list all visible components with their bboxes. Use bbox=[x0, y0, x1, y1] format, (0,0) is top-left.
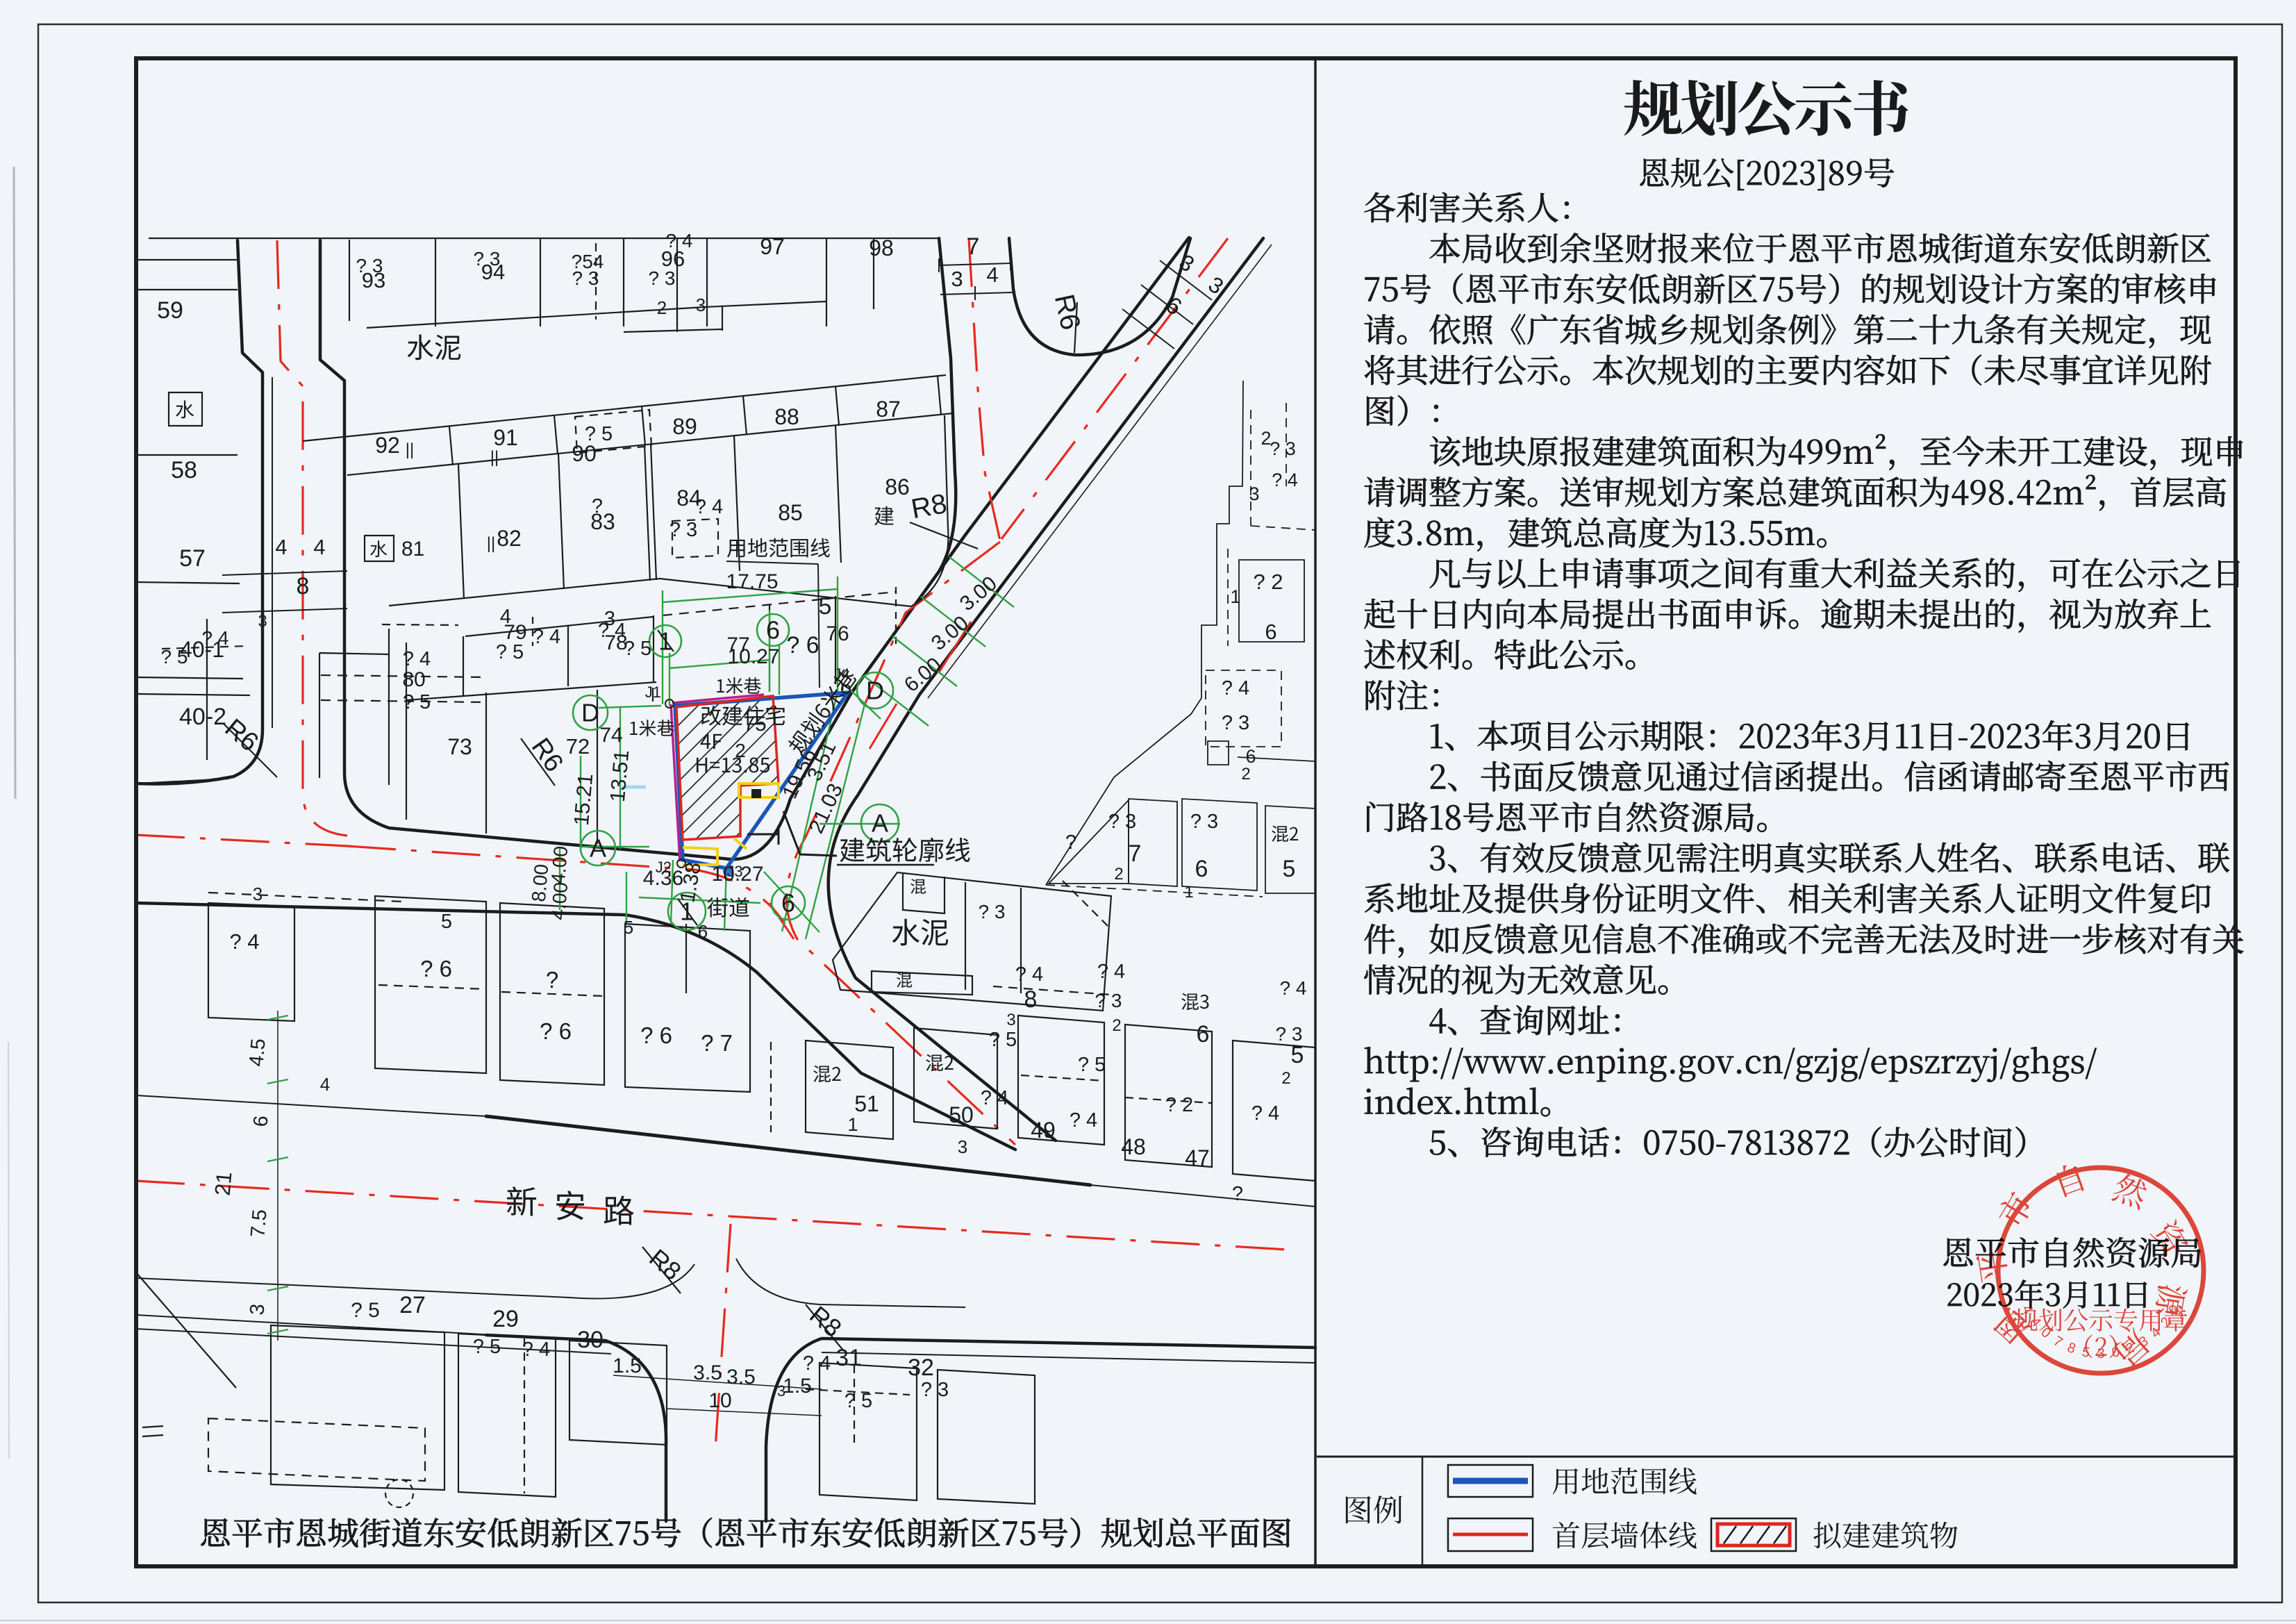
svg-text:? 7: ? 7 bbox=[701, 1030, 733, 1056]
svg-text:47: 47 bbox=[1185, 1145, 1210, 1170]
svg-text:||: || bbox=[487, 534, 495, 553]
svg-text:6: 6 bbox=[1195, 856, 1208, 882]
svg-text:? 3: ? 3 bbox=[572, 267, 599, 289]
svg-text:1: 1 bbox=[1184, 883, 1193, 902]
svg-text:? 5: ? 5 bbox=[624, 638, 651, 660]
svg-text:? 3: ? 3 bbox=[1108, 811, 1136, 833]
svg-text:57: 57 bbox=[179, 545, 206, 572]
svg-text:10: 10 bbox=[708, 1389, 731, 1412]
svg-text:A: A bbox=[872, 809, 888, 838]
svg-text:? 5: ? 5 bbox=[496, 641, 524, 663]
svg-text:89: 89 bbox=[672, 414, 697, 439]
svg-text:3: 3 bbox=[958, 1136, 967, 1157]
svg-text:87: 87 bbox=[876, 397, 901, 422]
svg-text:17.75: 17.75 bbox=[726, 570, 778, 593]
svg-text:? 6: ? 6 bbox=[540, 1018, 572, 1044]
svg-text:?: ? bbox=[1232, 1183, 1243, 1205]
svg-text:5: 5 bbox=[441, 911, 452, 933]
svg-text:? 3: ? 3 bbox=[1095, 990, 1122, 1011]
svg-text:A: A bbox=[590, 834, 606, 863]
svg-text:15.21: 15.21 bbox=[570, 772, 597, 827]
svg-text:92: 92 bbox=[375, 433, 400, 458]
svg-text:3: 3 bbox=[1249, 483, 1259, 504]
svg-text:2: 2 bbox=[1281, 1069, 1290, 1088]
svg-text:? 4: ? 4 bbox=[1097, 961, 1125, 983]
svg-text:1: 1 bbox=[847, 1114, 858, 1135]
svg-text:8: 8 bbox=[1024, 986, 1038, 1013]
svg-text:? 4: ? 4 bbox=[403, 648, 431, 670]
svg-text:5: 5 bbox=[819, 593, 832, 620]
svg-text:7: 7 bbox=[967, 233, 980, 260]
svg-text:? 4: ? 4 bbox=[1280, 977, 1307, 999]
svg-text:72: 72 bbox=[566, 734, 590, 759]
svg-text:88: 88 bbox=[774, 404, 799, 429]
svg-text:? 3: ? 3 bbox=[669, 519, 697, 541]
svg-text:3: 3 bbox=[777, 1382, 785, 1400]
svg-text:4.00: 4.00 bbox=[547, 845, 572, 885]
svg-text:? 3: ? 3 bbox=[1190, 811, 1218, 833]
svg-text:85: 85 bbox=[778, 500, 803, 525]
svg-text:J4: J4 bbox=[833, 665, 849, 683]
svg-text:10.27: 10.27 bbox=[727, 645, 779, 668]
svg-text:49: 49 bbox=[1031, 1118, 1056, 1143]
svg-text:? 4: ? 4 bbox=[1272, 470, 1298, 490]
svg-text:? 4: ? 4 bbox=[1070, 1109, 1097, 1132]
svg-text:2: 2 bbox=[735, 740, 746, 761]
svg-text:76: 76 bbox=[826, 622, 849, 645]
svg-text:? 5: ? 5 bbox=[1078, 1054, 1106, 1076]
svg-text:3: 3 bbox=[2097, 1346, 2104, 1361]
svg-text:? 4: ? 4 bbox=[1015, 963, 1043, 986]
svg-text:3: 3 bbox=[246, 1303, 269, 1316]
svg-text:5: 5 bbox=[1291, 1042, 1304, 1068]
svg-text:? 4: ? 4 bbox=[1222, 677, 1249, 699]
svg-text:3: 3 bbox=[1006, 1011, 1015, 1029]
svg-text:? 6: ? 6 bbox=[420, 956, 452, 981]
svg-text:? 2: ? 2 bbox=[1165, 1094, 1193, 1116]
svg-text:? 5: ? 5 bbox=[989, 1029, 1017, 1051]
svg-text:5: 5 bbox=[624, 917, 633, 938]
svg-text:31: 31 bbox=[835, 1345, 862, 1371]
svg-text:73: 73 bbox=[447, 734, 472, 759]
svg-text:?: ? bbox=[1065, 831, 1076, 854]
svg-text:13.51: 13.51 bbox=[606, 749, 633, 803]
svg-text:58: 58 bbox=[171, 457, 197, 483]
svg-text:? 4: ? 4 bbox=[695, 496, 723, 518]
svg-text:2: 2 bbox=[1112, 1016, 1121, 1035]
svg-text:4: 4 bbox=[320, 1074, 330, 1095]
svg-text:1: 1 bbox=[1230, 586, 1240, 607]
svg-text:75: 75 bbox=[743, 713, 766, 736]
svg-text:2: 2 bbox=[1114, 865, 1123, 884]
svg-text:||: || bbox=[490, 448, 499, 467]
svg-text:1.5: 1.5 bbox=[613, 1354, 642, 1377]
svg-text:? 3: ? 3 bbox=[921, 1379, 949, 1401]
svg-text:? 3: ? 3 bbox=[979, 901, 1006, 922]
svg-text:40-2: 40-2 bbox=[179, 704, 226, 730]
svg-text:7: 7 bbox=[1129, 840, 1142, 867]
svg-text:? 6: ? 6 bbox=[786, 632, 819, 658]
svg-text:? 4: ? 4 bbox=[229, 929, 259, 954]
svg-text:48: 48 bbox=[1121, 1134, 1146, 1159]
svg-text:4.5: 4.5 bbox=[245, 1038, 269, 1068]
svg-text:?: ? bbox=[592, 495, 603, 517]
svg-text:? 6: ? 6 bbox=[640, 1022, 672, 1048]
svg-text:? 3: ? 3 bbox=[356, 255, 383, 276]
svg-text:3.5: 3.5 bbox=[693, 1361, 722, 1384]
svg-text:6: 6 bbox=[1197, 1021, 1210, 1047]
svg-text:1.5: 1.5 bbox=[783, 1375, 812, 1398]
svg-text:6: 6 bbox=[781, 889, 795, 918]
svg-text:21: 21 bbox=[210, 1170, 237, 1196]
svg-text:? 3: ? 3 bbox=[1270, 438, 1296, 459]
svg-text:? 3: ? 3 bbox=[649, 267, 676, 289]
svg-text:? 3: ? 3 bbox=[1222, 712, 1249, 734]
svg-text:8: 8 bbox=[297, 573, 310, 599]
svg-text:? 4: ? 4 bbox=[533, 626, 560, 648]
svg-text:? 4: ? 4 bbox=[1251, 1102, 1279, 1125]
svg-text:D: D bbox=[581, 699, 599, 727]
svg-text:3: 3 bbox=[253, 884, 263, 904]
svg-text:74: 74 bbox=[599, 724, 622, 747]
svg-text:? 4: ? 4 bbox=[522, 1339, 550, 1361]
svg-text:6: 6 bbox=[1245, 746, 1256, 767]
svg-text:?: ? bbox=[546, 967, 558, 993]
svg-text:? 4: ? 4 bbox=[803, 1352, 831, 1375]
svg-text:32: 32 bbox=[908, 1354, 934, 1381]
svg-text:3.5: 3.5 bbox=[726, 1366, 756, 1389]
svg-text:4: 4 bbox=[986, 263, 998, 287]
svg-text:J2: J2 bbox=[656, 859, 672, 876]
svg-text:D: D bbox=[866, 677, 884, 705]
svg-text:59: 59 bbox=[157, 297, 183, 324]
svg-text:? 4: ? 4 bbox=[202, 627, 229, 649]
svg-text:82: 82 bbox=[497, 526, 522, 551]
svg-text:3: 3 bbox=[951, 267, 963, 291]
svg-text:? 2: ? 2 bbox=[1253, 570, 1283, 594]
svg-text:91: 91 bbox=[493, 425, 518, 450]
svg-text:J3: J3 bbox=[726, 863, 742, 880]
svg-text:? 5: ? 5 bbox=[161, 646, 188, 668]
svg-text:6: 6 bbox=[1265, 620, 1276, 644]
svg-text:27: 27 bbox=[399, 1292, 426, 1318]
svg-text:80: 80 bbox=[402, 668, 425, 691]
svg-text:? 5: ? 5 bbox=[845, 1390, 872, 1412]
svg-text:||: || bbox=[406, 440, 414, 459]
svg-text:7.5: 7.5 bbox=[247, 1209, 271, 1238]
svg-text:6: 6 bbox=[766, 616, 780, 645]
svg-text:4: 4 bbox=[275, 535, 287, 559]
svg-text:? 5: ? 5 bbox=[473, 1336, 501, 1358]
svg-text:86: 86 bbox=[885, 474, 910, 499]
svg-text:97: 97 bbox=[760, 234, 785, 259]
svg-text:6: 6 bbox=[249, 1115, 272, 1128]
svg-text:6: 6 bbox=[698, 921, 708, 942]
svg-text:51: 51 bbox=[854, 1091, 879, 1116]
svg-text:4.00: 4.00 bbox=[547, 881, 572, 921]
svg-text:50: 50 bbox=[949, 1102, 974, 1127]
svg-text:2: 2 bbox=[657, 297, 667, 318]
svg-text:? 5: ? 5 bbox=[351, 1299, 380, 1322]
svg-text:3: 3 bbox=[258, 612, 267, 631]
svg-text:2: 2 bbox=[1241, 765, 1250, 784]
svg-text:? 5: ? 5 bbox=[585, 423, 613, 445]
svg-text:4: 4 bbox=[313, 535, 325, 559]
svg-text:5: 5 bbox=[1283, 856, 1296, 882]
svg-text:3: 3 bbox=[696, 295, 706, 315]
svg-text:98: 98 bbox=[869, 235, 894, 260]
svg-text:30: 30 bbox=[577, 1327, 604, 1353]
svg-text:J1: J1 bbox=[645, 683, 661, 701]
svg-text:? 3: ? 3 bbox=[474, 248, 501, 270]
svg-text:R8: R8 bbox=[909, 488, 949, 524]
svg-text:? 5: ? 5 bbox=[403, 691, 431, 713]
svg-text:? 4: ? 4 bbox=[981, 1087, 1008, 1109]
svg-text:81: 81 bbox=[401, 538, 424, 561]
svg-text:29: 29 bbox=[492, 1306, 519, 1332]
